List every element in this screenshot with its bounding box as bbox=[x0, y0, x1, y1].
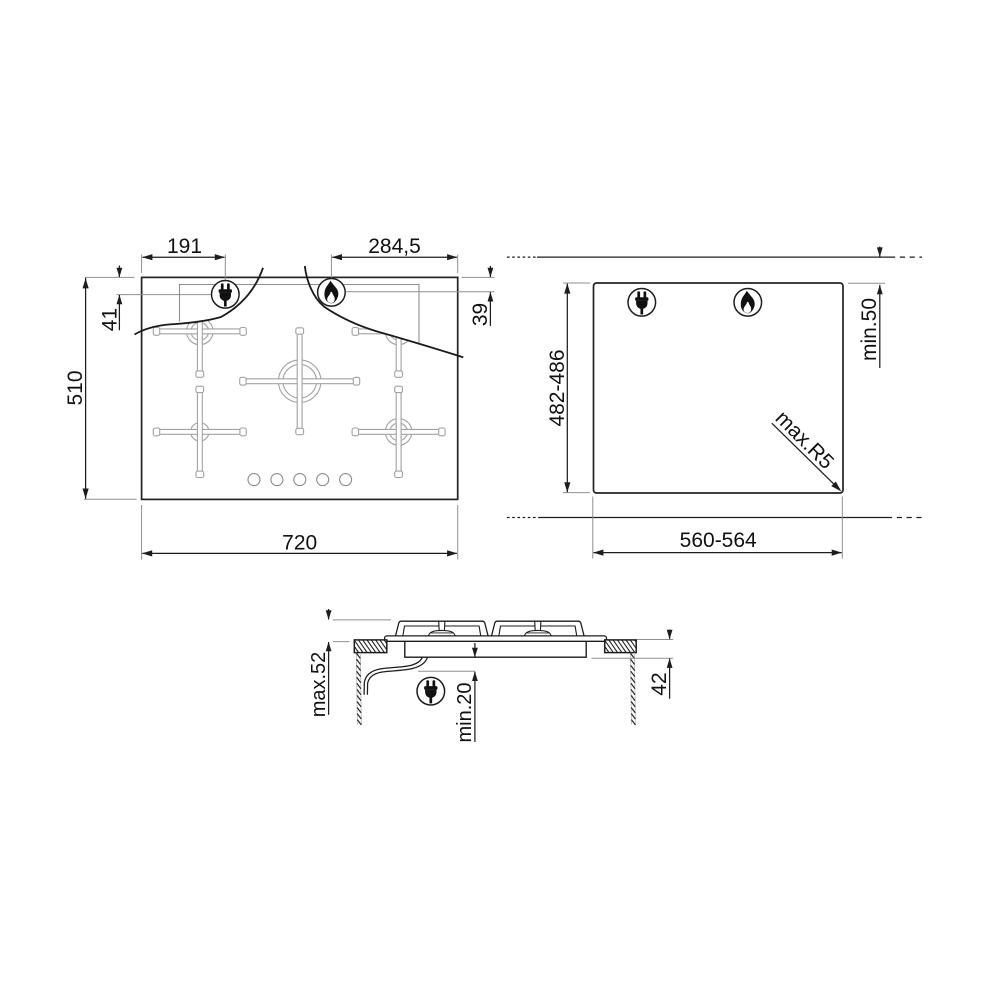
svg-text:42: 42 bbox=[648, 672, 671, 695]
svg-text:min.20: min.20 bbox=[454, 682, 476, 742]
svg-text:41: 41 bbox=[99, 308, 122, 331]
svg-text:284,5: 284,5 bbox=[368, 235, 421, 258]
svg-text:510: 510 bbox=[64, 370, 87, 405]
svg-text:560-564: 560-564 bbox=[680, 529, 757, 552]
svg-text:720: 720 bbox=[282, 532, 317, 555]
svg-text:max.52: max.52 bbox=[308, 652, 330, 718]
svg-text:39: 39 bbox=[469, 303, 492, 326]
svg-text:482-486: 482-486 bbox=[546, 349, 569, 426]
svg-text:min.50: min.50 bbox=[858, 298, 881, 361]
svg-text:191: 191 bbox=[167, 235, 202, 258]
